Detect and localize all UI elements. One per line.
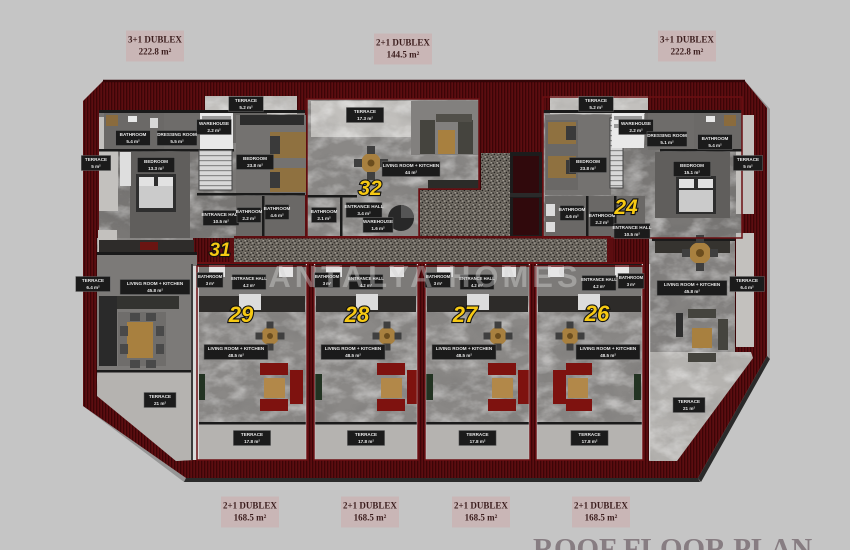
svg-text:2+1 DUBLEX: 2+1 DUBLEX xyxy=(376,38,430,48)
svg-text:17.8 m²: 17.8 m² xyxy=(582,439,598,444)
svg-text:DRESSING ROOM: DRESSING ROOM xyxy=(157,132,197,137)
svg-text:5.2 m²: 5.2 m² xyxy=(239,105,253,110)
svg-text:BATHROOM: BATHROOM xyxy=(198,274,223,279)
svg-text:DRESSING ROOM: DRESSING ROOM xyxy=(647,133,687,138)
svg-text:LIVING ROOM + KITCHEN: LIVING ROOM + KITCHEN xyxy=(436,346,493,351)
svg-text:32: 32 xyxy=(358,177,382,200)
svg-text:LIVING ROOM + KITCHEN: LIVING ROOM + KITCHEN xyxy=(208,346,265,351)
svg-text:10.5 m²: 10.5 m² xyxy=(213,219,229,224)
svg-text:23.8 m²: 23.8 m² xyxy=(580,166,596,171)
svg-text:BATHROOM: BATHROOM xyxy=(264,206,291,211)
svg-text:ENTRANCE HALL: ENTRANCE HALL xyxy=(581,277,617,282)
svg-text:ENTRANCE HALL: ENTRANCE HALL xyxy=(612,225,651,230)
svg-text:5 m²: 5 m² xyxy=(743,164,753,169)
svg-text:4.6 m²: 4.6 m² xyxy=(270,213,284,218)
svg-text:ENTRANCE HALL: ENTRANCE HALL xyxy=(344,204,383,209)
svg-text:LIVING ROOM + KITCHEN: LIVING ROOM + KITCHEN xyxy=(127,281,184,286)
svg-text:3+1 DUBLEX: 3+1 DUBLEX xyxy=(660,35,714,45)
svg-text:TERRACE: TERRACE xyxy=(149,394,171,399)
svg-text:2+1 DUBLEX: 2+1 DUBLEX xyxy=(223,501,277,511)
svg-text:13.3 m²: 13.3 m² xyxy=(148,166,164,171)
svg-text:21 m²: 21 m² xyxy=(154,401,166,406)
svg-text:TERRACE: TERRACE xyxy=(736,278,758,283)
svg-text:2.2 m²: 2.2 m² xyxy=(629,128,643,133)
svg-text:168.5 m²: 168.5 m² xyxy=(234,513,267,523)
svg-text:2.2 m²: 2.2 m² xyxy=(207,128,221,133)
svg-text:3 m²: 3 m² xyxy=(206,281,215,286)
svg-text:222.8 m²: 222.8 m² xyxy=(139,47,172,57)
svg-text:BEDROOM: BEDROOM xyxy=(680,163,704,168)
svg-text:17.8 m²: 17.8 m² xyxy=(244,439,260,444)
svg-text:TERRACE: TERRACE xyxy=(85,157,107,162)
svg-text:17.8 m²: 17.8 m² xyxy=(358,439,374,444)
svg-text:BATHROOM: BATHROOM xyxy=(559,207,586,212)
svg-text:5.4 m²: 5.4 m² xyxy=(126,139,140,144)
svg-text:27: 27 xyxy=(452,302,479,327)
svg-text:ENTRANCE HALL: ENTRANCE HALL xyxy=(231,276,267,281)
svg-text:LIVING ROOM + KITCHEN: LIVING ROOM + KITCHEN xyxy=(664,282,721,287)
svg-text:222.8 m²: 222.8 m² xyxy=(671,47,704,57)
svg-text:TERRACE: TERRACE xyxy=(737,157,759,162)
svg-text:TERRACE: TERRACE xyxy=(241,432,263,437)
svg-text:TERRACE: TERRACE xyxy=(354,109,376,114)
svg-text:TERRACE: TERRACE xyxy=(678,399,700,404)
svg-text:BATHROOM: BATHROOM xyxy=(120,132,147,137)
svg-text:21 m²: 21 m² xyxy=(683,406,695,411)
svg-text:TERRACE: TERRACE xyxy=(235,98,257,103)
svg-text:28: 28 xyxy=(344,302,370,327)
svg-text:WAREHOUSE: WAREHOUSE xyxy=(621,121,651,126)
svg-text:23.8 m²: 23.8 m² xyxy=(247,163,263,168)
svg-text:10.5 m²: 10.5 m² xyxy=(624,232,640,237)
svg-text:3.4 m²: 3.4 m² xyxy=(357,211,371,216)
svg-text:BATHROOM: BATHROOM xyxy=(589,213,616,218)
svg-text:LIVING ROOM + KITCHEN: LIVING ROOM + KITCHEN xyxy=(580,346,637,351)
svg-text:4.2 m²: 4.2 m² xyxy=(243,283,256,288)
svg-text:TERRACE: TERRACE xyxy=(585,98,607,103)
svg-text:BATHROOM: BATHROOM xyxy=(702,136,729,141)
svg-text:TERRACE: TERRACE xyxy=(466,432,488,437)
svg-text:144.5 m²: 144.5 m² xyxy=(387,50,420,60)
svg-text:6.4 m²: 6.4 m² xyxy=(86,285,100,290)
svg-text:45.8 m²: 45.8 m² xyxy=(147,288,163,293)
svg-text:5.1 m²: 5.1 m² xyxy=(660,140,674,145)
svg-text:168.5 m²: 168.5 m² xyxy=(465,513,498,523)
svg-text:26: 26 xyxy=(584,301,610,326)
svg-text:BATHROOM: BATHROOM xyxy=(619,275,644,280)
svg-text:168.5 m²: 168.5 m² xyxy=(585,513,618,523)
svg-text:3 m²: 3 m² xyxy=(627,282,636,287)
svg-text:5.4 m²: 5.4 m² xyxy=(708,143,722,148)
svg-text:31: 31 xyxy=(209,240,230,261)
svg-text:48.5 m²: 48.5 m² xyxy=(456,353,472,358)
svg-text:LIVING ROOM + KITCHEN: LIVING ROOM + KITCHEN xyxy=(383,163,440,168)
svg-text:24: 24 xyxy=(613,196,638,219)
svg-text:BEDROOM: BEDROOM xyxy=(243,156,267,161)
svg-text:3+1 DUBLEX: 3+1 DUBLEX xyxy=(128,35,182,45)
svg-text:BEDROOM: BEDROOM xyxy=(144,159,168,164)
svg-text:5.2 m²: 5.2 m² xyxy=(589,105,603,110)
svg-text:17.3 m²: 17.3 m² xyxy=(357,116,373,121)
svg-text:17.8 m²: 17.8 m² xyxy=(470,439,486,444)
svg-text:168.5 m²: 168.5 m² xyxy=(354,513,387,523)
svg-text:29: 29 xyxy=(228,302,254,327)
svg-text:BEDROOM: BEDROOM xyxy=(576,159,600,164)
svg-text:BATHROOM: BATHROOM xyxy=(236,209,263,214)
svg-text:5 m²: 5 m² xyxy=(91,164,101,169)
svg-text:2.2 m²: 2.2 m² xyxy=(242,216,256,221)
svg-text:BATHROOM: BATHROOM xyxy=(311,209,338,214)
svg-text:WAREHOUSE: WAREHOUSE xyxy=(363,219,393,224)
svg-text:ANTALYA HOMES: ANTALYA HOMES xyxy=(268,259,581,294)
svg-text:2.1 m²: 2.1 m² xyxy=(317,216,331,221)
svg-text:2.2 m²: 2.2 m² xyxy=(595,220,609,225)
svg-text:6.4 m²: 6.4 m² xyxy=(740,285,754,290)
svg-text:2+1 DUBLEX: 2+1 DUBLEX xyxy=(343,501,397,511)
svg-text:TERRACE: TERRACE xyxy=(355,432,377,437)
svg-text:WAREHOUSE: WAREHOUSE xyxy=(199,121,229,126)
svg-text:TERRACE: TERRACE xyxy=(82,278,104,283)
svg-text:48.5 m²: 48.5 m² xyxy=(600,353,616,358)
svg-text:44 m²: 44 m² xyxy=(405,170,417,175)
svg-text:ROOF FLOOR PLAN: ROOF FLOOR PLAN xyxy=(533,533,812,550)
svg-text:4.2 m²: 4.2 m² xyxy=(593,284,606,289)
svg-text:1.6 m²: 1.6 m² xyxy=(371,226,385,231)
svg-text:5.5 m²: 5.5 m² xyxy=(170,139,184,144)
svg-text:LIVING ROOM + KITCHEN: LIVING ROOM + KITCHEN xyxy=(325,346,382,351)
svg-text:4.6 m²: 4.6 m² xyxy=(565,214,579,219)
svg-text:TERRACE: TERRACE xyxy=(578,432,600,437)
svg-text:2+1 DUBLEX: 2+1 DUBLEX xyxy=(574,501,628,511)
svg-text:45.8 m²: 45.8 m² xyxy=(684,289,700,294)
svg-text:48.5 m²: 48.5 m² xyxy=(228,353,244,358)
svg-text:48.5 m²: 48.5 m² xyxy=(345,353,361,358)
svg-text:2+1 DUBLEX: 2+1 DUBLEX xyxy=(454,501,508,511)
svg-text:15.1 m²: 15.1 m² xyxy=(684,170,700,175)
